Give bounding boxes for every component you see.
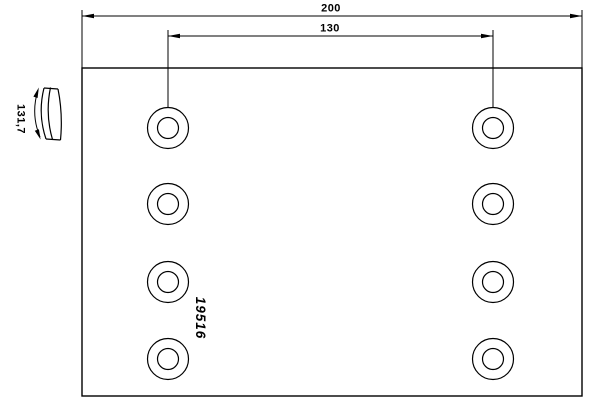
profile-outer-arc	[41, 88, 46, 139]
arc-length-dimension-label: 131,7	[15, 104, 26, 134]
arrowhead-right-icon	[570, 14, 582, 19]
profile-middle-arc	[48, 88, 52, 140]
drawing-canvas	[0, 0, 600, 400]
dimension-overall-width	[82, 10, 582, 68]
lining-plate-outline	[82, 68, 582, 396]
brake-lining-drawing: 200 130 131,7 19516	[0, 0, 600, 400]
part-number-label: 19516	[193, 297, 207, 340]
profile-back-arc	[58, 89, 61, 140]
profile-bottom-cap	[46, 139, 61, 140]
profile-top-cap	[44, 88, 58, 89]
arrowhead-right-icon	[481, 34, 493, 39]
side-profile	[33, 88, 61, 141]
arrowhead-left-icon	[82, 14, 94, 19]
arc-arrowhead-bottom-icon	[35, 129, 41, 139]
rivet-hole	[148, 184, 189, 225]
hole-spacing-dimension-label: 130	[320, 24, 340, 35]
rivet-hole	[473, 184, 514, 225]
rivet-hole	[148, 262, 189, 303]
arrowhead-left-icon	[168, 34, 180, 39]
rivet-hole	[148, 108, 189, 149]
dimension-hole-spacing	[168, 30, 493, 108]
overall-width-dimension-label: 200	[321, 4, 341, 15]
rivet-hole	[473, 339, 514, 380]
rivet-hole	[148, 339, 189, 380]
rivet-hole	[473, 262, 514, 303]
arc-arrowhead-top-icon	[33, 88, 38, 99]
rivet-hole	[473, 108, 514, 149]
